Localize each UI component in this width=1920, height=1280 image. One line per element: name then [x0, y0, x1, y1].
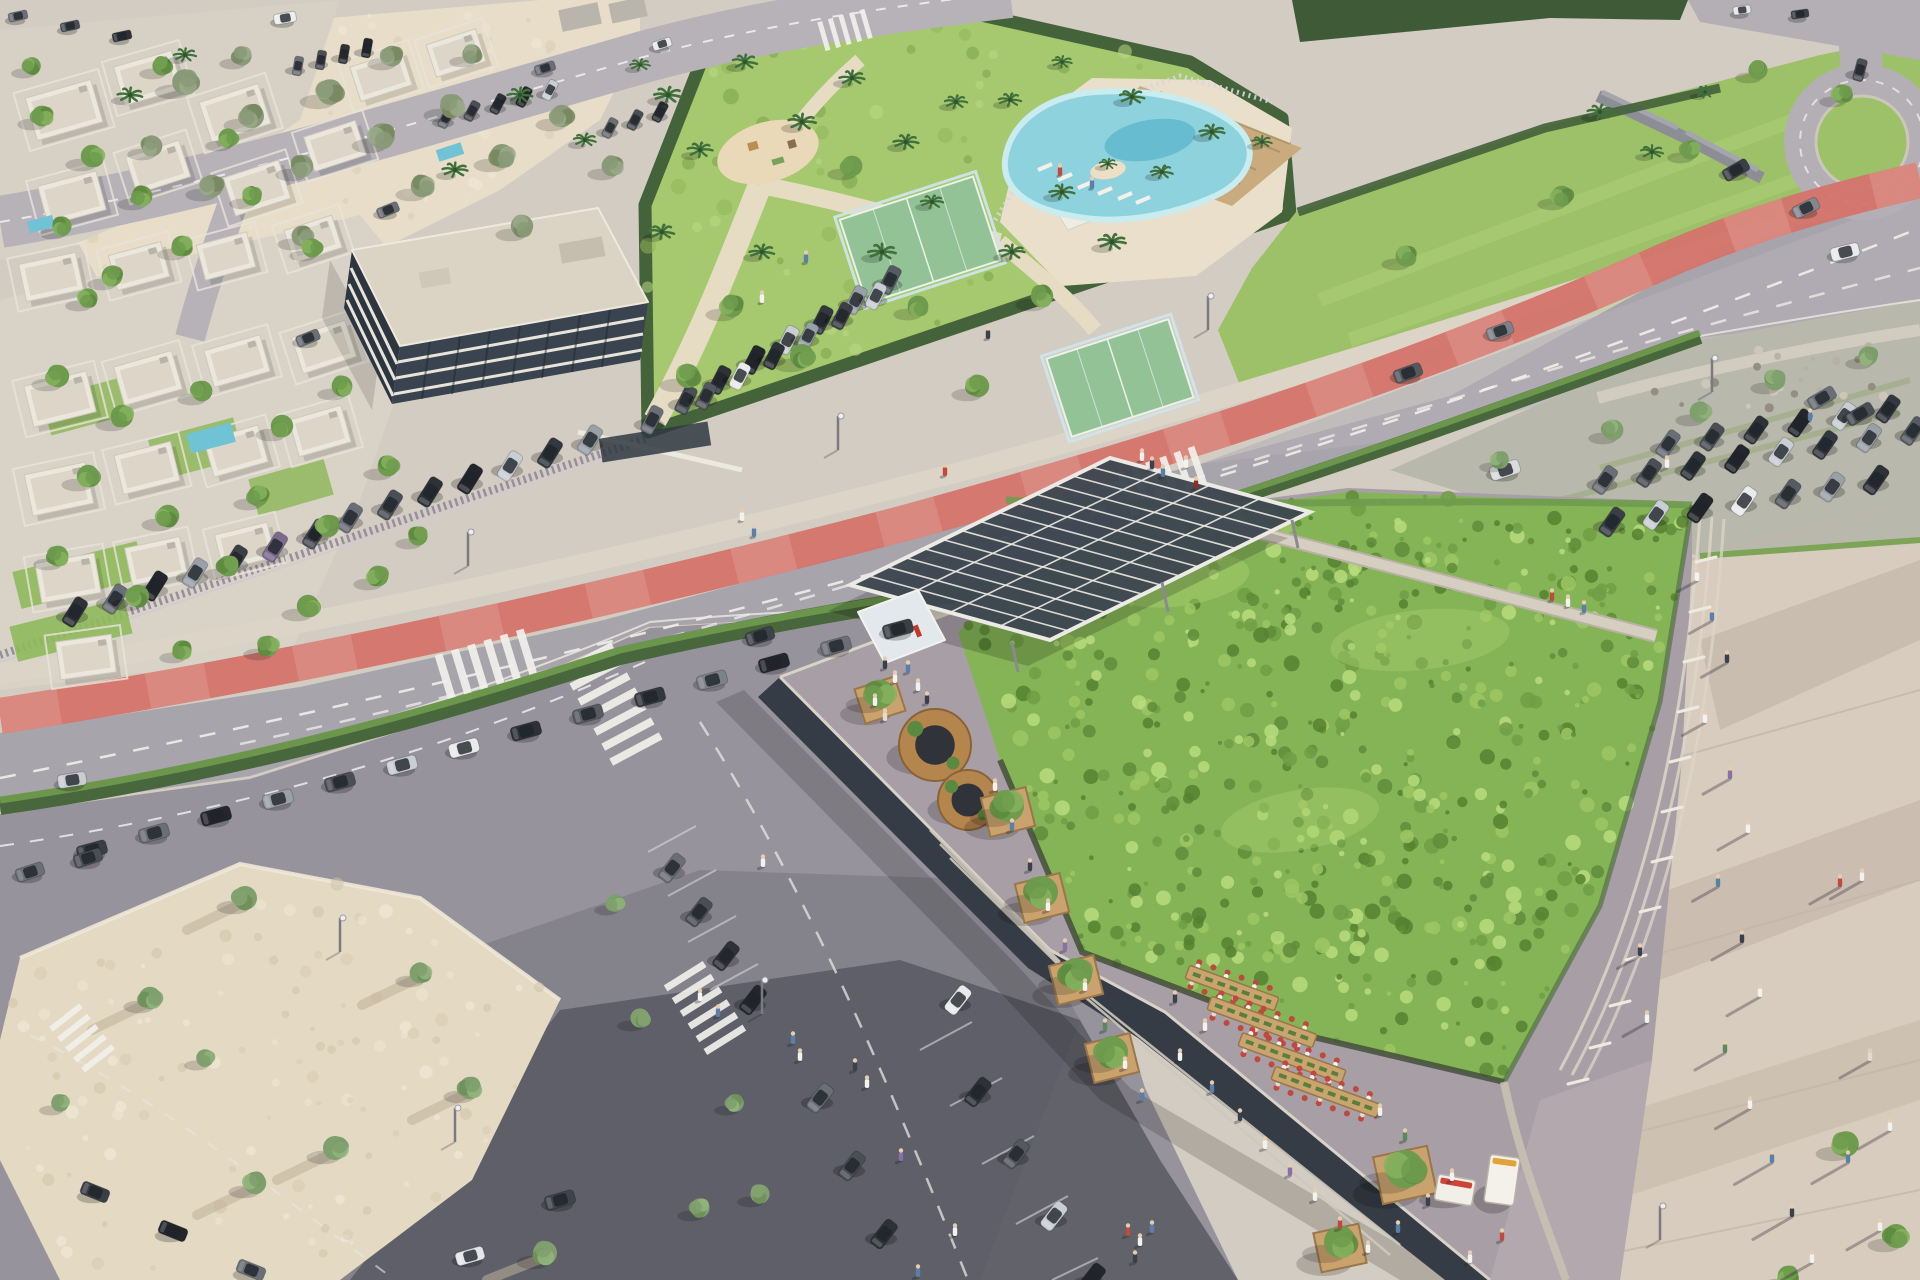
people-east-promenade-part [1838, 878, 1842, 887]
sedum-texture-part [1156, 777, 1172, 793]
sedum-texture-part [1076, 710, 1085, 719]
lot-sand-texture-part [347, 1097, 353, 1103]
sedum-texture-part [1218, 654, 1231, 667]
people-entrance-part [891, 683, 895, 684]
people-crosswalk-entrance-part [1159, 477, 1163, 478]
sedum-texture-part [1075, 681, 1080, 686]
club-lawn-texture-part [975, 100, 983, 108]
sedum-texture-part [1235, 735, 1244, 744]
sedum-texture-part [1535, 677, 1542, 684]
sedum-texture-part [1040, 768, 1055, 783]
sedum-texture-part [1399, 537, 1404, 542]
lawn-boulders-part [1833, 357, 1841, 365]
sedum-texture-part [1271, 701, 1277, 707]
club-lawn-texture-part [717, 199, 733, 215]
people-streets-part [1133, 1250, 1137, 1254]
people-crosswalk-entrance-part [1140, 452, 1144, 461]
sedum-texture-part [1505, 665, 1517, 677]
sedum-texture-part [1240, 703, 1254, 717]
lot-sand-texture-part [8, 998, 18, 1008]
sedum-texture-part [1342, 670, 1356, 684]
sedum-texture-part [1627, 656, 1639, 668]
lot-sand-texture-part [115, 1101, 126, 1112]
sedum-texture-part [1246, 592, 1255, 601]
sedum-texture-part [1345, 910, 1354, 919]
sedum-texture-part [1456, 1021, 1460, 1025]
sedum-texture-part [1012, 730, 1028, 746]
people-east-promenade-part [1860, 868, 1864, 872]
people-streets-part [916, 1264, 920, 1268]
people-east-promenade-part [1790, 1208, 1794, 1217]
sedum-texture-part [1440, 885, 1444, 889]
people-east-promenade-part [1695, 572, 1699, 581]
people-east-promenade-part [1888, 1122, 1892, 1131]
people-crosswalk-entrance-part [1140, 448, 1144, 452]
people-streets-part [953, 1227, 957, 1236]
lot-sand-texture-part [159, 1076, 165, 1082]
villas-left-part-part [98, 639, 107, 646]
lot-sand-texture-part [219, 930, 231, 942]
people-sidewalk-pair-part [752, 528, 756, 537]
lot-sand-texture-part [254, 933, 262, 941]
trees-promenade-part [1832, 1132, 1850, 1150]
people-west-terrace-part [1026, 871, 1031, 873]
sedum-texture-part [1144, 881, 1148, 885]
sedum-texture-part [1104, 657, 1117, 670]
sedum-texture-part [1653, 536, 1660, 543]
palm-trees-part [1130, 95, 1134, 99]
club-lawn-texture-part [960, 136, 967, 143]
saplings-streets-part [725, 1097, 737, 1109]
sedum-texture-part [1486, 998, 1498, 1010]
sedum-texture-part [1065, 877, 1072, 884]
lot-sand-texture-part [255, 899, 266, 910]
people-crosswalk-entrance-part [1150, 460, 1154, 469]
people-entrance-part [871, 706, 875, 707]
people-streets-part [916, 1268, 920, 1277]
sedum-texture-part [1148, 648, 1160, 660]
lot-sand-texture-part [218, 991, 223, 996]
club-lawn-texture-part [870, 105, 884, 119]
sedum-texture-part [1189, 746, 1200, 757]
people-streets-part [716, 1008, 720, 1017]
sedum-texture-part [1548, 573, 1556, 581]
people-west-terrace-part [1044, 911, 1049, 913]
sedum-texture-part [1436, 543, 1442, 549]
club-lawn-texture-part [1118, 44, 1132, 58]
sedum-texture-part [1379, 896, 1391, 908]
trees-ne-parking-part [1771, 370, 1785, 384]
people-east-promenade-part [1878, 1222, 1882, 1231]
people-south-terrace-part [1500, 1232, 1504, 1241]
lot-sand-texture-part [292, 1180, 305, 1193]
people-entrance-part [873, 697, 877, 706]
people-streets-part [761, 854, 765, 858]
sedum-texture-part [1055, 800, 1070, 815]
lot-sand-texture-part [432, 1036, 440, 1044]
people-south-terrace-part [1210, 1080, 1214, 1084]
sedum-texture-part [1550, 619, 1556, 625]
sedum-texture-part [1205, 681, 1210, 686]
sedum-texture-part [1564, 690, 1570, 696]
olive-trees-sand-field-part [316, 81, 334, 99]
lot-sand-texture-part [215, 1217, 223, 1225]
sedum-texture-part [1350, 923, 1359, 932]
sedum-texture-part [1061, 818, 1067, 824]
palm-trees-part [954, 100, 958, 104]
street-lamps-part [468, 529, 474, 535]
lot-sand-texture-part [379, 904, 393, 918]
people-streets-part [853, 1058, 857, 1062]
sedum-texture-part [1404, 762, 1408, 766]
sedum-texture-part [1189, 769, 1199, 779]
palm-trees-part [930, 200, 934, 204]
sedum-texture-part [1533, 757, 1541, 765]
lot-sand-texture-part [308, 1204, 313, 1209]
people-entrance-part [916, 682, 920, 691]
sedum-texture-part [1439, 792, 1447, 800]
sedum-texture-part [1176, 678, 1190, 692]
trees-club-part [1031, 285, 1046, 300]
sedum-texture-part [1312, 864, 1323, 875]
sand-texture-part [248, 225, 253, 230]
palm-trees-part [850, 76, 854, 80]
lot-sand-texture-part [482, 1126, 491, 1135]
street-lamps-part [340, 915, 346, 921]
people-east-promenade-part [1725, 650, 1729, 654]
sedum-texture-part [1227, 644, 1239, 656]
people-east-promenade-part [1728, 766, 1732, 770]
people-streets-part [897, 1161, 902, 1163]
people-west-terrace-part [1121, 1069, 1126, 1071]
people-east-promenade-part [1878, 1218, 1882, 1222]
sedum-texture-part [1445, 810, 1449, 814]
trees-villas-left-part [386, 459, 400, 473]
jogger-bike-lane-part [941, 476, 945, 477]
sedum-texture-part [1264, 724, 1278, 738]
people-crosswalk-entrance-part [1194, 480, 1198, 489]
palm-trees-part [1650, 150, 1654, 154]
lot-sand-texture-part [141, 964, 145, 968]
sedum-texture-part [1085, 698, 1093, 706]
lot-sand-texture-part [340, 953, 352, 965]
sedum-texture-part [1221, 876, 1234, 889]
people-south-terrace-part [1238, 1112, 1242, 1121]
sedum-texture-part [1602, 802, 1612, 812]
club-lawn-texture-part [959, 29, 971, 41]
sedum-texture-part [1426, 804, 1435, 813]
olive-trees-sand-field-part [441, 94, 458, 111]
lot-sand-texture-part [416, 988, 429, 1001]
sedum-texture-part [1423, 537, 1431, 545]
club-lawn-texture-part [982, 69, 991, 78]
sedum-texture-part [1607, 566, 1613, 572]
sedum-texture-part [1499, 722, 1513, 736]
lot-sand-texture-part [82, 1135, 88, 1141]
sedum-texture-part [1394, 677, 1407, 690]
sedum-texture-part [1528, 538, 1535, 545]
people-east-promenade-part [1868, 1048, 1872, 1052]
people-west-terrace-part [1028, 862, 1032, 871]
people-south-terrace-part [1178, 1052, 1182, 1061]
lot-sand-texture-part [319, 1249, 328, 1258]
people-east-promenade-part [1740, 934, 1744, 943]
south-terrace-planters-part [1331, 1226, 1353, 1248]
club-lawn-texture-part [816, 159, 822, 165]
sedum-texture-part [1306, 568, 1319, 581]
sedum-texture-part [1183, 835, 1190, 842]
club-lawn-texture-part [938, 128, 953, 143]
sedum-texture-part [1066, 821, 1075, 830]
lot-sand-texture-part [108, 999, 114, 1005]
lot-sand-texture-part [239, 1047, 246, 1054]
sedum-texture-part [1154, 782, 1159, 787]
people-entrance-part [893, 674, 897, 683]
sedum-texture-part [1029, 667, 1041, 679]
lot-sand-texture-part [229, 1165, 236, 1172]
sedum-texture-part [1643, 660, 1654, 671]
people-west-terrace-part [1203, 1018, 1207, 1022]
saplings-sandy-lot-part [148, 990, 163, 1005]
lot-sand-texture-part [401, 1085, 406, 1090]
sedum-texture-part [1585, 570, 1598, 583]
sedum-texture-part [1339, 930, 1350, 941]
sand-texture-part [526, 18, 531, 23]
lot-sand-texture-part [330, 877, 343, 890]
palm-trees-part [1260, 140, 1264, 144]
sedum-texture-part [1453, 728, 1460, 735]
people-south-terrace-part [1401, 1141, 1406, 1143]
lot-sand-texture-part [534, 982, 544, 992]
sedum-texture-part [1274, 870, 1282, 878]
sedum-texture-part [1462, 538, 1466, 542]
sedum-texture-part [1330, 679, 1343, 692]
people-east-promenade-part [1758, 984, 1762, 988]
sedum-texture-part [1354, 862, 1361, 869]
sedum-texture-part [1364, 988, 1371, 995]
sedum-texture-part [1459, 519, 1463, 523]
people-south-terrace-part [1403, 1132, 1407, 1141]
sedum-texture-part [1361, 772, 1371, 782]
sedum-texture-part [1440, 859, 1445, 864]
palm-trees-part [1703, 90, 1707, 94]
people-streets-part [899, 1152, 903, 1161]
club-lawn-texture-part [934, 320, 940, 326]
sedum-texture-part [1250, 877, 1258, 885]
sedum-texture-part [1506, 887, 1522, 903]
sedum-texture-part [1308, 720, 1313, 725]
people-streets-part [865, 1075, 869, 1079]
sedum-texture-part [1532, 770, 1539, 777]
lot-sand-texture-part [357, 916, 366, 925]
people-roof-path-part [1565, 607, 1568, 608]
trees-villas-left-part [224, 556, 238, 570]
saplings-sandy-lot-part [331, 1137, 348, 1154]
people-roof-path-part [1550, 588, 1554, 592]
people-south-terrace-part [1403, 1128, 1407, 1132]
people-entrance-part [904, 673, 908, 674]
lot-sand-texture-part [401, 1031, 408, 1038]
sedum-texture-part [1146, 668, 1159, 681]
sand-texture-part [368, 21, 376, 29]
sedum-texture-part [1406, 977, 1416, 987]
sedum-texture-part [1429, 683, 1434, 688]
sedum-texture-part [1200, 689, 1204, 693]
people-sidewalk-pair-part [740, 508, 744, 512]
sedum-texture-part [1407, 749, 1414, 756]
people-west-terrace-part [1081, 991, 1086, 993]
olive-trees-sand-field-part [464, 50, 477, 63]
trees-villas-top-part [154, 56, 167, 69]
sedum-texture-part [1284, 655, 1300, 671]
sedum-texture-part [1571, 732, 1576, 737]
sedum-texture-part [1237, 664, 1242, 669]
sedum-texture-part [1081, 795, 1086, 800]
saplings-streets-part [52, 1094, 64, 1106]
trees-ne-lawn-part [1554, 192, 1568, 206]
trees-villas-top-part [171, 242, 185, 256]
people-streets-part [798, 1048, 802, 1052]
people-sidewalk-pair-part [739, 521, 742, 522]
trees-villas-top-part [57, 223, 70, 236]
people-roof-path-part [1550, 592, 1554, 601]
people-club-part [1058, 163, 1062, 167]
sedum-texture-part [1654, 614, 1662, 622]
people-sidewalk-pair-part [751, 537, 754, 538]
sedum-texture-part [1224, 739, 1234, 749]
lawn-boulders-part [1746, 404, 1751, 409]
sedum-texture-part [1128, 812, 1141, 825]
saplings-sandy-lot-part [413, 962, 427, 976]
lot-sand-texture-part [475, 1032, 480, 1037]
lot-sand-texture-part [483, 1004, 491, 1012]
club-lawn-texture-part [983, 271, 993, 281]
lot-sand-texture-part [350, 1241, 354, 1245]
people-west-terrace-part [1103, 1018, 1107, 1022]
lot-sand-texture-part [393, 1130, 400, 1137]
sedum-texture-part [1443, 881, 1453, 891]
people-club-part [804, 250, 808, 254]
sedum-texture-part [1533, 928, 1544, 939]
sedum-texture-part [1469, 894, 1477, 902]
sedum-texture-part [1350, 941, 1365, 956]
people-crosswalk-entrance-part [1194, 476, 1198, 480]
sand-texture-part [328, 111, 332, 115]
lot-sand-texture-part [91, 1257, 104, 1270]
palm-trees-part [501, 97, 521, 105]
people-entrance-part [906, 660, 910, 664]
people-entrance-part [883, 708, 887, 712]
sand-texture-part [546, 49, 551, 54]
club-lawn-texture-part [907, 45, 916, 54]
sedum-texture-part [1441, 671, 1451, 681]
sedum-texture-part [1214, 830, 1222, 838]
people-west-terrace-part [1010, 822, 1014, 831]
sedum-texture-part [1599, 602, 1605, 608]
sedum-texture-part [1323, 570, 1334, 581]
club-lawn-texture-part [723, 89, 739, 105]
lot-sand-texture-part [308, 1238, 316, 1246]
people-crosswalk-entrance-part [1148, 469, 1152, 470]
sedum-texture-part [1472, 521, 1484, 533]
club-lawn-texture-part [783, 269, 790, 276]
people-streets-part [789, 1044, 794, 1046]
street-lamps-part [762, 977, 768, 983]
palm-trees-part [698, 148, 702, 152]
people-roof-path-part [1582, 600, 1586, 604]
sedum-texture-part [1282, 752, 1296, 766]
club-lawn-texture-part [816, 168, 824, 176]
people-crosswalk-entrance-part [1138, 461, 1142, 462]
sedum-texture-part [1247, 658, 1256, 667]
sedum-texture-part [1070, 718, 1080, 728]
people-streets-part [914, 1277, 919, 1279]
sedum-texture-part [1408, 775, 1420, 787]
people-crosswalk-entrance-part [1184, 455, 1188, 459]
club-lawn-texture-part [843, 330, 850, 337]
sedum-texture-part [1360, 838, 1367, 845]
sedum-texture-part [1448, 543, 1458, 553]
sedum-texture-part [1026, 690, 1040, 704]
sedum-texture-part [1053, 780, 1058, 785]
palm-trees-part [1598, 110, 1602, 114]
sedum-texture-part [1480, 1032, 1493, 1045]
sedum-texture-part [1534, 613, 1543, 622]
sedum-texture-part [1135, 771, 1150, 786]
sedum-texture-part [1123, 762, 1137, 776]
trees-villas-top-part [310, 241, 323, 254]
sedum-texture-part [1521, 569, 1528, 576]
sedum-texture-part [1345, 1009, 1358, 1022]
people-south-terrace-part [1261, 1149, 1266, 1151]
people-south-terrace-part [1263, 1136, 1267, 1140]
people-streets-part [953, 1223, 957, 1227]
people-west-terrace-part [1063, 942, 1067, 951]
lot-sand-texture-part [272, 1079, 280, 1087]
olive-trees-sand-field-part [419, 180, 434, 195]
sedum-texture-part [1224, 778, 1235, 789]
lot-sand-texture-part [269, 955, 278, 964]
people-streets-part [796, 1061, 801, 1063]
sand-texture-part [463, 11, 473, 21]
sedum-texture-part [1232, 610, 1240, 618]
sedum-texture-part [1236, 621, 1244, 629]
people-west-terrace-part [993, 782, 997, 791]
trees-villas-top-part [22, 60, 34, 72]
sedum-texture-part [1027, 713, 1040, 726]
lot-sand-texture-part [150, 1265, 156, 1271]
people-club-part [985, 339, 988, 340]
people-west-terrace-part [1046, 898, 1050, 902]
sedum-texture-part [1262, 603, 1268, 609]
people-parking-part [1808, 412, 1812, 421]
sedum-texture-part [1558, 648, 1568, 658]
people-south-terrace-part [1500, 1228, 1504, 1232]
people-south-terrace-part [1313, 1192, 1317, 1201]
street-lamps-part [1712, 355, 1718, 361]
people-south-terrace-part [1498, 1241, 1503, 1243]
trees-club-part [723, 295, 738, 310]
people-west-terrace-part [1173, 994, 1177, 1003]
people-east-promenade-part [1716, 874, 1720, 878]
sedum-texture-part [1128, 803, 1136, 811]
sedum-texture-part [1502, 1045, 1507, 1050]
sedum-texture-part [1285, 624, 1297, 636]
lot-sand-texture-part [512, 1084, 517, 1089]
sedum-texture-part [1451, 836, 1457, 842]
people-crosswalk-entrance-part [1184, 459, 1188, 468]
people-east-promenade-part [1860, 872, 1864, 881]
